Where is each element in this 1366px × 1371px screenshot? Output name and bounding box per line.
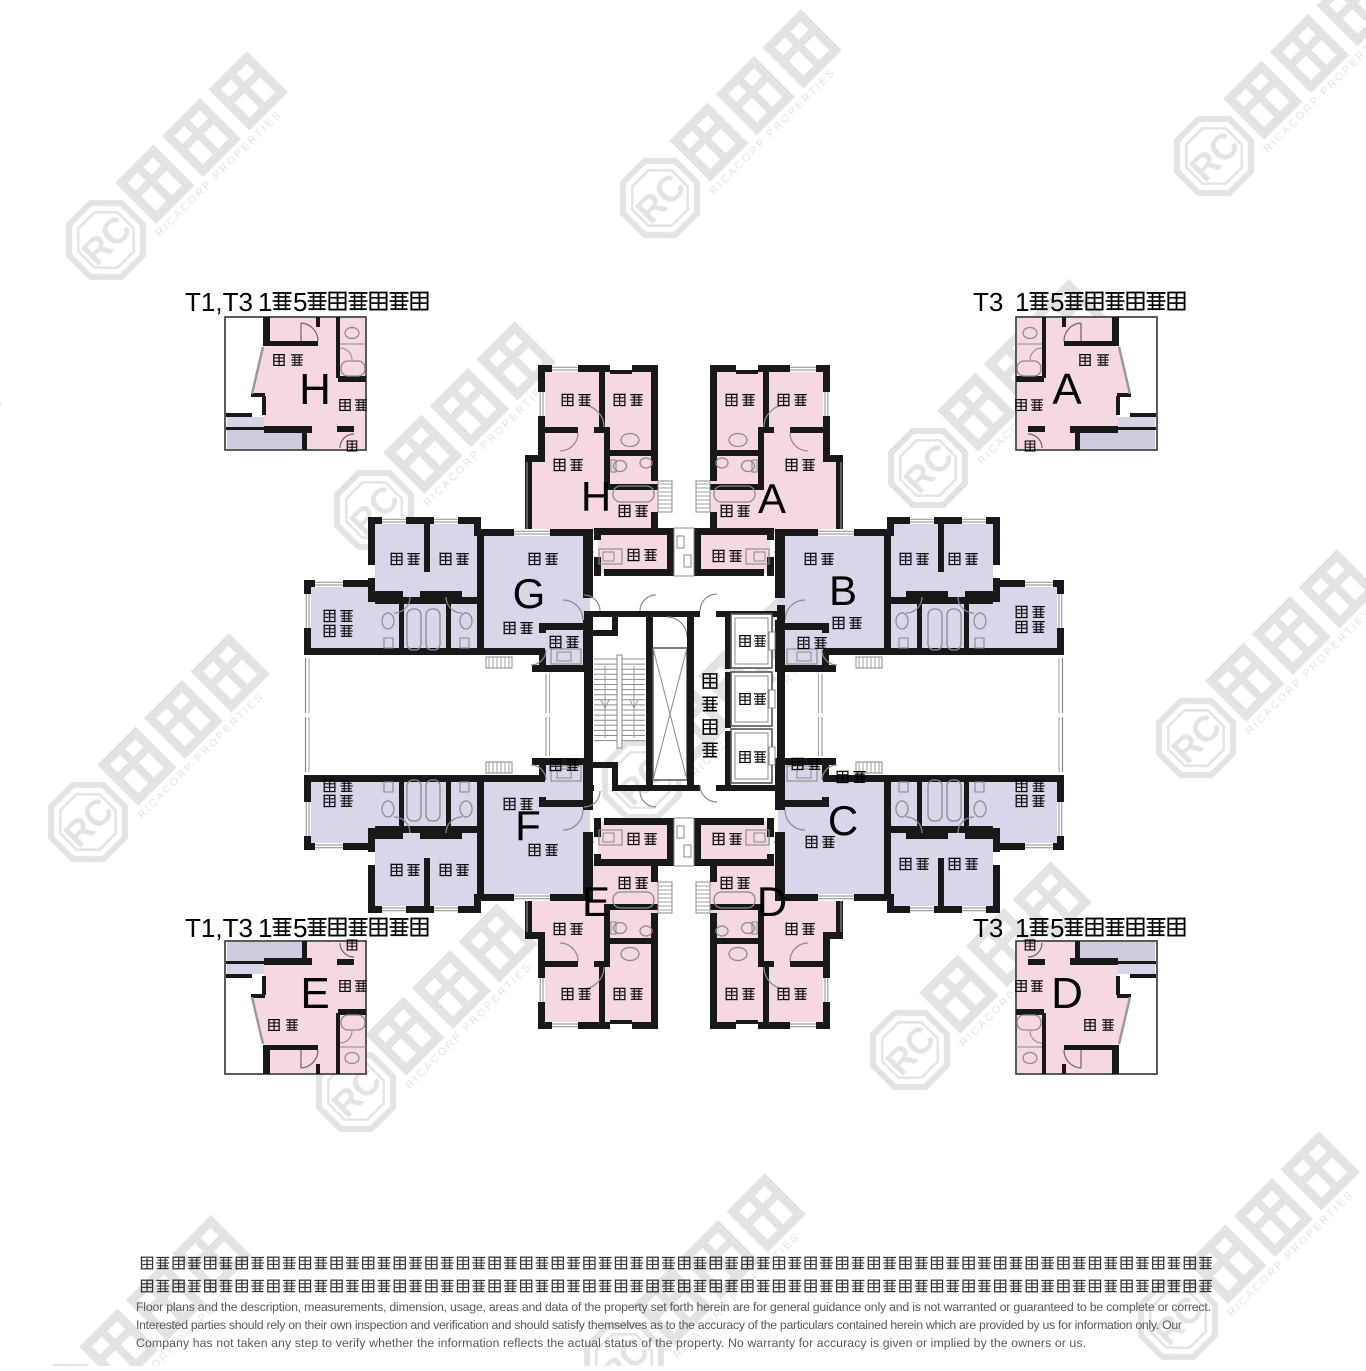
svg-text:5: 5 [293,913,307,943]
svg-text:1: 1 [1015,913,1029,943]
svg-text:5: 5 [1050,913,1064,943]
svg-text:D: D [1051,969,1083,1018]
svg-text:1: 1 [258,913,272,943]
svg-text:T1,T3: T1,T3 [185,913,253,943]
svg-text:E: E [300,969,329,1018]
svg-text:H: H [581,473,611,520]
svg-text:E: E [582,878,610,925]
svg-text:F: F [515,802,541,849]
svg-text:1: 1 [258,287,272,317]
svg-text:Company has not taken any step: Company has not taken any step to verify… [136,1336,1086,1350]
svg-text:Interested parties should rely: Interested parties should rely on their … [136,1318,1182,1332]
svg-text:B: B [829,567,857,614]
svg-text:G: G [513,570,546,617]
svg-text:5: 5 [1050,287,1064,317]
svg-text:C: C [828,797,858,844]
svg-text:Floor plans and the descriptio: Floor plans and the description, measure… [136,1300,1211,1314]
svg-text:5: 5 [293,287,307,317]
svg-text:A: A [758,475,786,522]
svg-text:1: 1 [1015,287,1029,317]
svg-text:T3: T3 [973,287,1003,317]
svg-text:H: H [299,365,331,414]
svg-text:T3: T3 [973,913,1003,943]
svg-text:A: A [1052,365,1082,414]
svg-text:T1,T3: T1,T3 [185,287,253,317]
svg-text:D: D [757,878,787,925]
